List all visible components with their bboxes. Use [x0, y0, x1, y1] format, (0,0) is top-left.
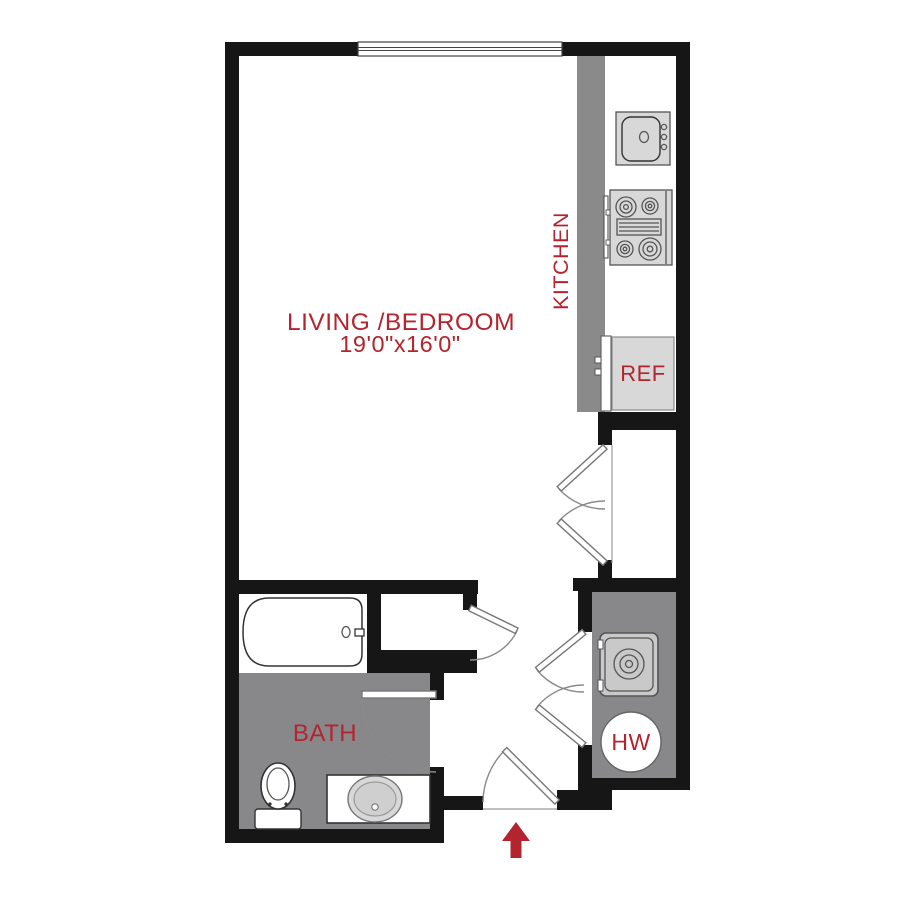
- closet-south-wall: [367, 650, 477, 673]
- toilet-bolt-1: [268, 802, 271, 805]
- utility-door-arc-lower: [537, 685, 584, 707]
- floorplan-canvas: REF HW BATH: [0, 0, 900, 900]
- vanity-drain: [372, 804, 378, 810]
- hw-north-wall: [592, 578, 690, 592]
- linen-closet-door-panel: [469, 605, 518, 633]
- bathtub-icon: [243, 598, 364, 666]
- living-south-wall: [225, 580, 478, 594]
- tub-outline: [243, 598, 362, 666]
- window-frame: [358, 42, 562, 56]
- water-heater-icon: HW: [601, 712, 661, 772]
- window-icon: [358, 42, 562, 56]
- closet-door-arc-upper: [559, 489, 605, 509]
- vanity-basin-inner: [354, 782, 396, 816]
- washer-latch-1: [598, 640, 603, 649]
- closet-door-panel-upper: [557, 445, 607, 491]
- linen-closet-door-arc: [470, 631, 517, 660]
- closet-door-panel-lower: [557, 519, 607, 565]
- sink-basin: [622, 117, 660, 161]
- toilet-bolt-2: [284, 802, 287, 805]
- bath-south-wall: [225, 829, 444, 843]
- entry-door-icon: [483, 748, 559, 805]
- hw-label: HW: [611, 729, 650, 755]
- stove-handle-notch-1: [606, 210, 610, 215]
- stove-handle: [604, 196, 608, 258]
- hw-south-wall: [584, 776, 690, 790]
- ref-hinge-2: [595, 369, 601, 375]
- stove-handle-notch-2: [606, 240, 610, 245]
- entry-door-arc: [483, 750, 505, 802]
- ref-label: REF: [620, 361, 666, 386]
- closet-stub-top: [598, 430, 612, 445]
- ref-hinge-1: [595, 357, 601, 363]
- washer-latch-2: [598, 680, 603, 691]
- closet-double-doors-icon: [557, 445, 607, 565]
- refrigerator-icon: REF: [595, 336, 674, 411]
- floor-plan: REF HW BATH: [0, 0, 900, 900]
- vanity-sink-icon: [327, 775, 430, 823]
- ref-door-panel: [601, 336, 611, 411]
- closet-door-arc-lower: [559, 501, 605, 521]
- bath-label: BATH: [293, 720, 357, 747]
- utility-double-doors-icon: [535, 630, 585, 748]
- utility-door-arc-upper: [537, 670, 584, 692]
- kitchen-sink-icon: [616, 112, 670, 165]
- entry-arrow-icon: [502, 822, 530, 858]
- top-wall-left: [225, 42, 358, 56]
- toilet-tank: [255, 809, 301, 829]
- bath-door-panel: [362, 691, 436, 698]
- washer-body: [600, 633, 658, 696]
- utility-door-panel-lower: [535, 705, 585, 747]
- top-wall-right: [562, 42, 690, 56]
- left-wall: [225, 42, 239, 843]
- entry-sill-left-wall: [444, 796, 483, 810]
- living-dims-label: 19'0"x16'0": [339, 331, 460, 357]
- entry-door-panel: [503, 748, 560, 805]
- utility-door-panel-upper: [535, 630, 585, 672]
- stove-icon: [604, 190, 672, 265]
- kitchen-closet-wall: [598, 412, 690, 430]
- kitchen-label: KITCHEN: [549, 212, 573, 310]
- washer-icon: [598, 633, 658, 696]
- tub-faucet: [355, 629, 364, 636]
- toilet-bowl: [261, 763, 295, 809]
